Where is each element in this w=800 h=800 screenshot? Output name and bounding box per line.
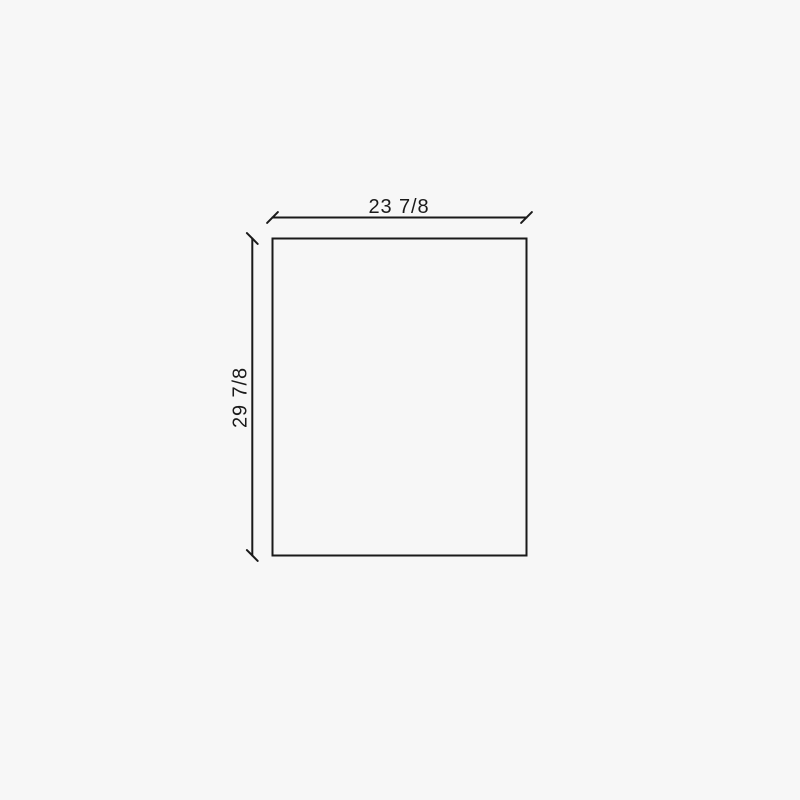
svg-text:23 7/8: 23 7/8: [368, 196, 429, 218]
svg-text:29 7/8: 29 7/8: [230, 367, 252, 428]
